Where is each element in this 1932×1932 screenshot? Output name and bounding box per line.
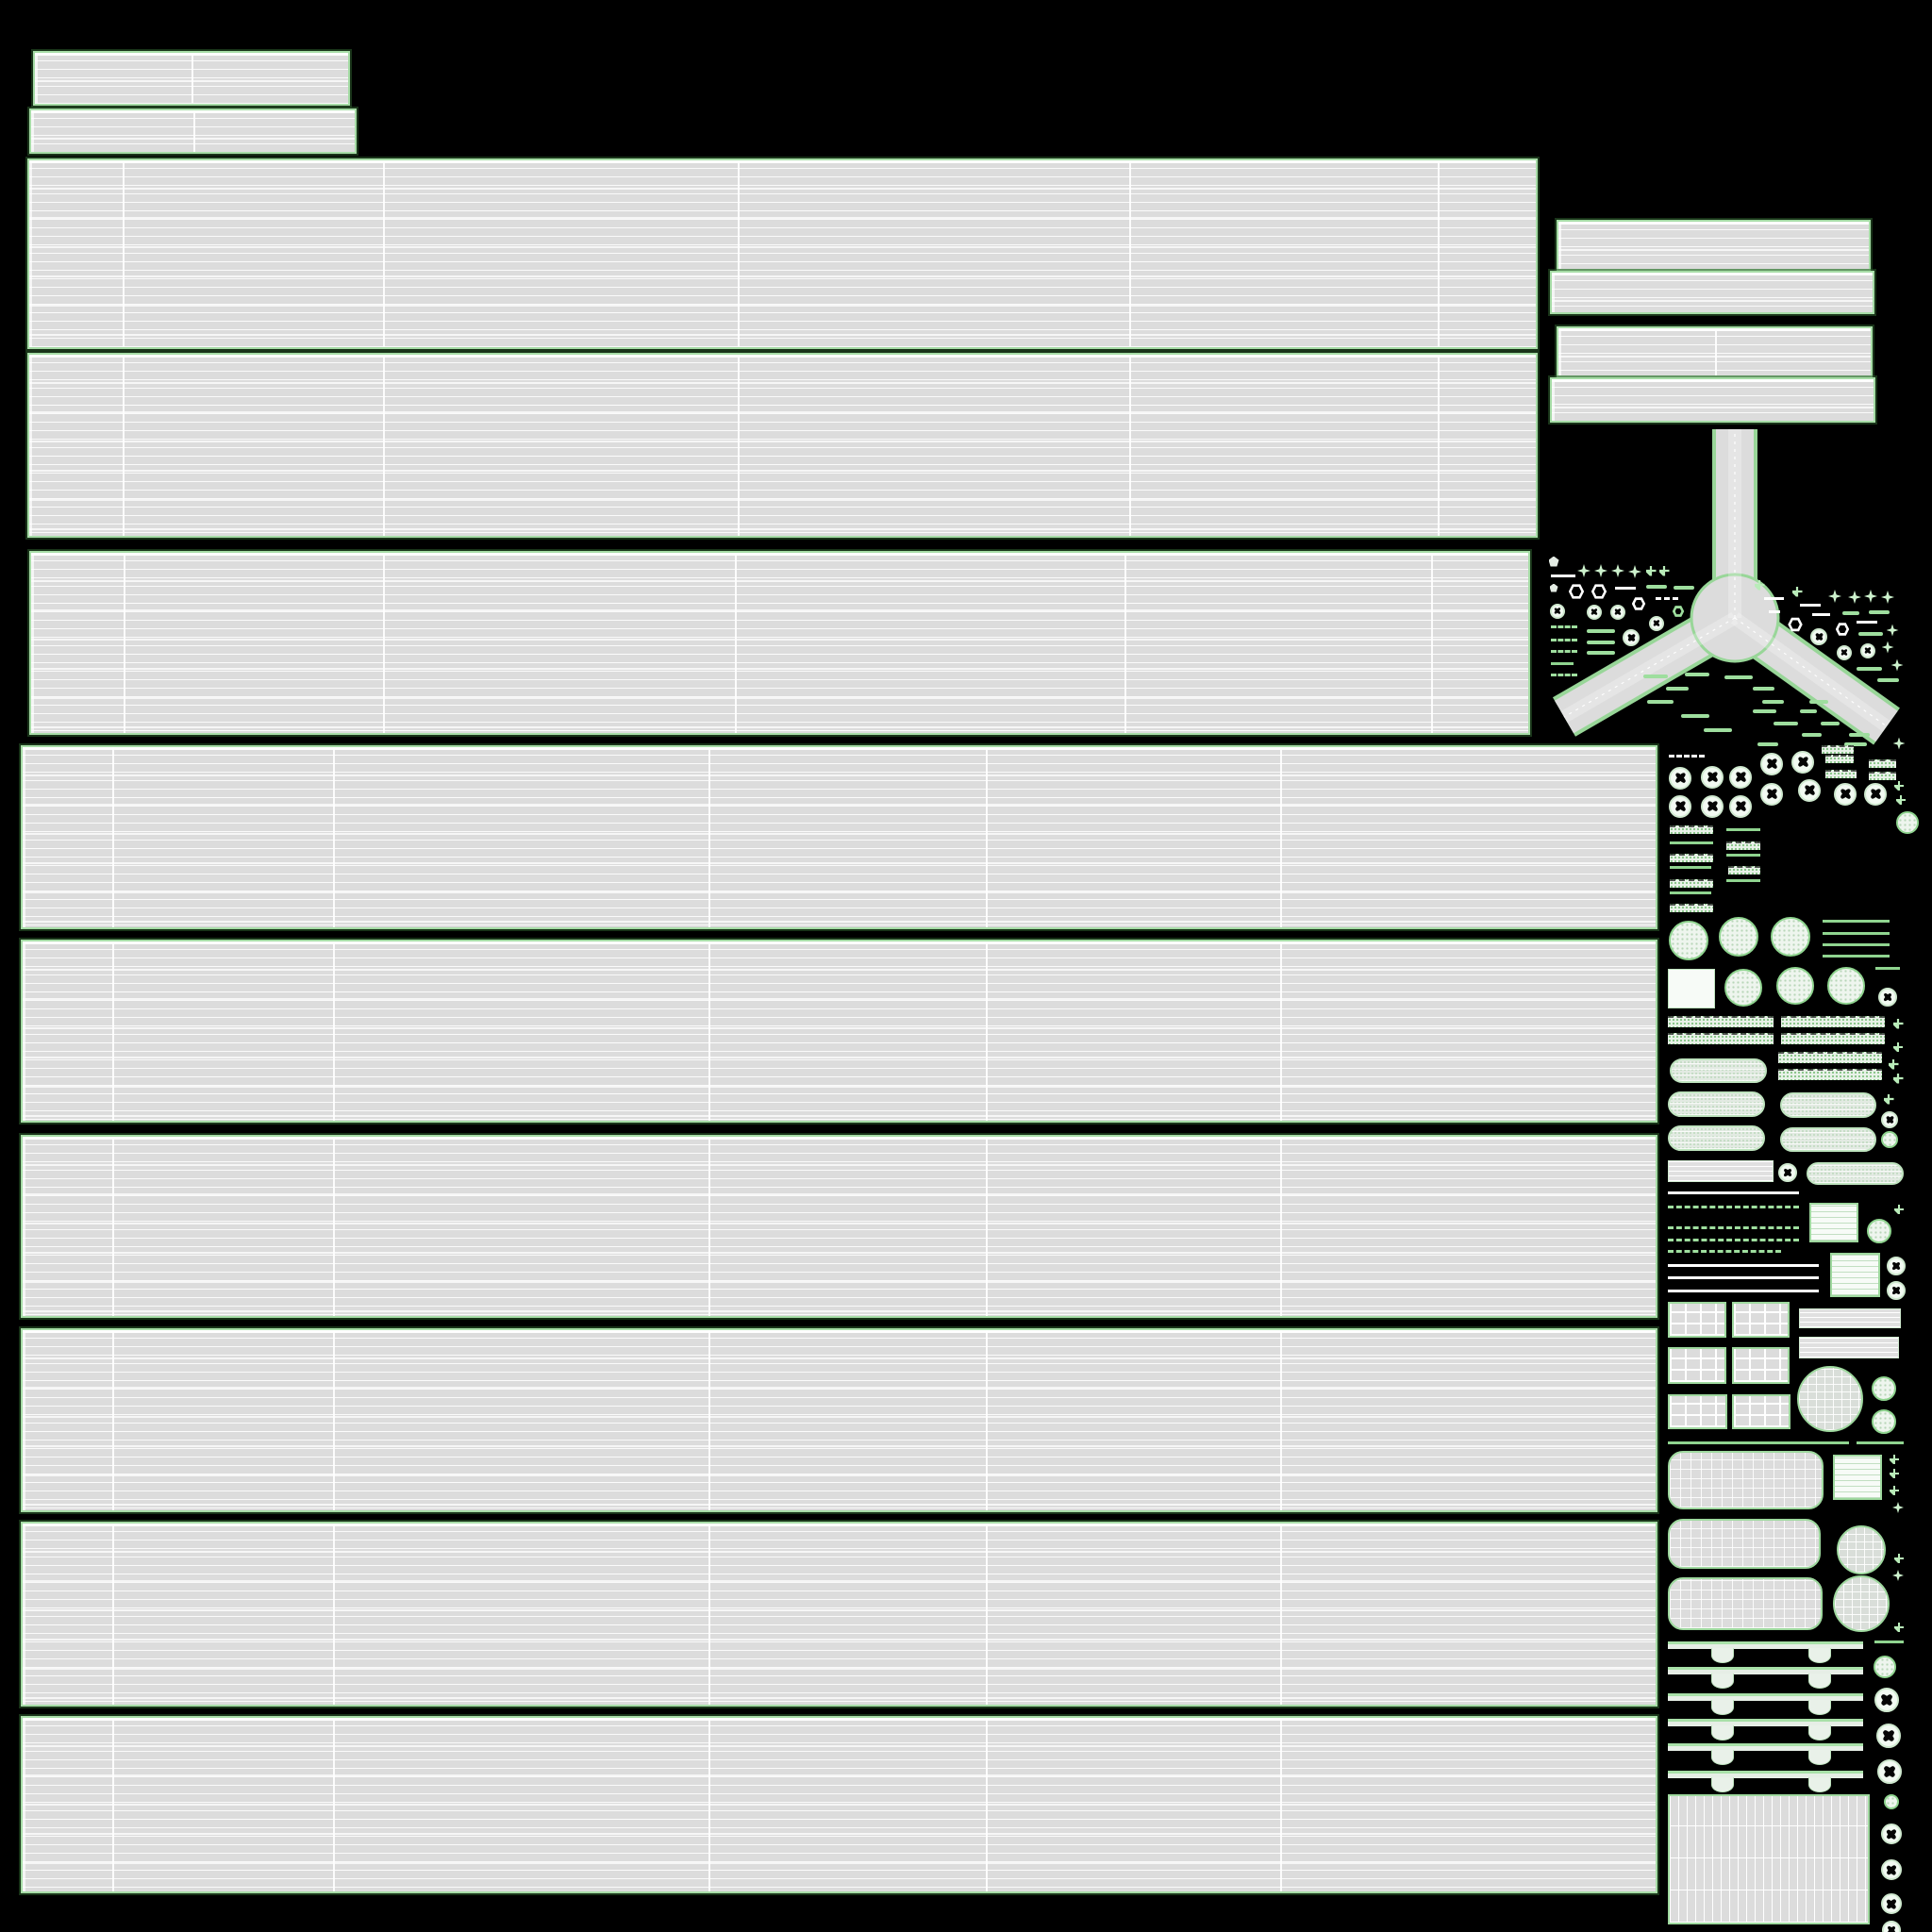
plank-seam (986, 1137, 988, 1316)
plank-seam (1280, 1137, 1282, 1316)
screw-head-island (1860, 643, 1875, 658)
disc-island (1872, 1409, 1896, 1434)
rail-island (1668, 1743, 1863, 1751)
white-seam-line (1668, 1191, 1799, 1194)
screw-head-island (1791, 751, 1814, 774)
screw-head-island (1610, 605, 1625, 620)
square-island (1668, 969, 1715, 1008)
rail-island (1668, 1641, 1863, 1649)
dotted-bar-island (1670, 854, 1713, 862)
panel-grid-island (1668, 1302, 1726, 1338)
plank-seam (708, 1137, 710, 1316)
green-edge-line (1726, 854, 1760, 857)
strip-6 (21, 1135, 1657, 1318)
green-edge-line (1823, 943, 1890, 946)
dotted-bar-island (1869, 759, 1896, 768)
white-seam-line (1857, 621, 1877, 624)
cross-icon (1890, 1469, 1899, 1478)
screw-head-island (1760, 783, 1783, 806)
hexagon-hole (1839, 625, 1847, 634)
green-edge-line (1874, 1641, 1904, 1643)
green-dash-line (1587, 651, 1615, 655)
dotted-bar-island (1781, 1016, 1885, 1027)
green-dash-line (1666, 687, 1689, 691)
green-edge-line (1823, 920, 1890, 923)
green-dash-line (1643, 675, 1668, 678)
rail-bump (1808, 1674, 1831, 1689)
dotted-bar-island (1781, 1033, 1885, 1044)
plank-seam (1280, 1330, 1282, 1510)
green-edge-line (1670, 841, 1713, 844)
white-seam-line (1551, 575, 1575, 577)
dotted-bar-island (1668, 1033, 1774, 1044)
plank-seam (192, 53, 193, 104)
panel-grid-island (1732, 1347, 1790, 1384)
panel-grid-island (1732, 1394, 1790, 1429)
plank-seam (383, 160, 385, 347)
green-dash-line (1587, 641, 1615, 644)
rail-bump (1808, 1700, 1831, 1715)
right-box-3 (1557, 326, 1873, 377)
screw-head-island (1729, 766, 1752, 789)
striped-square-island (1830, 1253, 1880, 1297)
disc-island (1884, 1794, 1899, 1809)
plank-seam (1280, 747, 1282, 927)
uv-texture-atlas (0, 0, 1932, 1932)
hexagon-hole (1594, 587, 1605, 597)
green-dash-line (1842, 611, 1859, 615)
green-dash-line (1858, 632, 1883, 636)
plank-seam (333, 1718, 335, 1891)
rail-bump (1711, 1725, 1734, 1740)
green-dash-line (1704, 728, 1732, 732)
rail-island (1668, 1693, 1863, 1701)
rail-bump (1808, 1750, 1831, 1765)
plank-seam (123, 355, 125, 536)
white-seam-line (1800, 604, 1821, 607)
sphere-island (1833, 1575, 1890, 1632)
plank-seam (986, 1524, 988, 1705)
screw-head-island (1550, 604, 1565, 619)
green-edge-line (1726, 828, 1760, 831)
white-dashed-line (1669, 755, 1705, 758)
plank-seam (1124, 553, 1126, 733)
top-box-2 (29, 108, 357, 154)
green-dash-line (1647, 700, 1674, 704)
cross-icon (1896, 795, 1906, 805)
green-dash-line (1849, 733, 1870, 737)
green-dashed-line (1551, 639, 1577, 641)
capsule-island (1670, 1058, 1767, 1083)
sphere-island (1797, 1366, 1863, 1432)
green-dash-line (1681, 714, 1709, 718)
disc-island (1896, 811, 1919, 834)
plank-seam (124, 553, 125, 733)
rail-island (1668, 1771, 1863, 1778)
strip-7 (21, 1328, 1657, 1512)
cross-icon (1893, 1074, 1904, 1084)
plank-seam (735, 553, 737, 733)
dotted-bar-island (1778, 1069, 1882, 1080)
dotted-bar-island (1670, 879, 1713, 888)
dotted-bar-island (1869, 772, 1896, 780)
plank-seam (112, 1524, 114, 1705)
dotted-bar-island (1726, 841, 1760, 850)
right-box-1 (1557, 220, 1871, 271)
plank-seam (1438, 160, 1440, 347)
dotted-bar-island (1822, 745, 1854, 754)
plank-seam (708, 1330, 710, 1510)
cushion-island (1668, 1519, 1821, 1569)
plank-seam (1431, 553, 1433, 733)
strip-5 (21, 940, 1657, 1123)
screw-head-island (1587, 605, 1602, 620)
disc-island (1874, 1656, 1896, 1678)
screw-head-island (1810, 628, 1827, 645)
capsule-island (1780, 1127, 1876, 1152)
panel-grid-island (1668, 1347, 1726, 1384)
cross-icon (1884, 1094, 1894, 1105)
cross-icon (1894, 1205, 1904, 1214)
screw-head-island (1882, 1921, 1901, 1932)
dotted-bar-island (1668, 1016, 1774, 1027)
screw-head-island (1778, 1163, 1797, 1182)
rail-bump (1711, 1700, 1734, 1715)
green-dash-line (1800, 709, 1817, 713)
plank-seam (1129, 355, 1131, 536)
screw-head-island (1669, 795, 1691, 818)
green-dash-line (1587, 629, 1615, 633)
screw-head-island (1881, 1824, 1902, 1844)
green-dashed-line (1668, 1250, 1781, 1253)
green-dash-line (1821, 722, 1840, 725)
plank-seam (986, 747, 988, 927)
white-seam-line (1668, 1276, 1819, 1279)
green-dash-line (1757, 742, 1778, 746)
plank-seam (193, 110, 195, 152)
plank-seam (112, 1330, 114, 1510)
disc-island (1724, 969, 1762, 1007)
screw-head-island (1874, 1688, 1899, 1712)
plank-seam (738, 355, 740, 536)
rail-bump (1711, 1674, 1734, 1689)
disc-island (1881, 1131, 1898, 1148)
panel-grid-island (1668, 1394, 1727, 1429)
dotted-bar-island (1728, 866, 1760, 874)
green-dash-line (1753, 709, 1776, 713)
dotted-bar-island (1670, 825, 1713, 834)
plank-seam (986, 1330, 988, 1510)
disc-island (1827, 967, 1865, 1005)
green-edge-line (1670, 866, 1711, 869)
dotted-bar-island (1670, 904, 1713, 912)
disc-island (1771, 917, 1810, 957)
strip-2 (27, 353, 1538, 538)
plank-seam (708, 1718, 710, 1891)
plank-seam (383, 553, 385, 733)
hexagon-hole (1790, 620, 1800, 629)
dotted-bar-island (1825, 770, 1857, 778)
plank-seam (1438, 355, 1440, 536)
hexagon-hole (1572, 587, 1582, 597)
plank-seam (333, 1137, 335, 1316)
cross-icon (1894, 1554, 1904, 1563)
disc-island (1669, 921, 1708, 960)
striped-square-island (1833, 1455, 1882, 1500)
green-edge-line (1823, 932, 1890, 935)
green-dashed-line (1668, 1206, 1799, 1208)
green-edge-line (1823, 955, 1890, 958)
plank-seam (1129, 160, 1131, 347)
striped-bar-island (1799, 1308, 1901, 1328)
screw-head-island (1760, 753, 1783, 775)
hexagon-hole (1635, 600, 1643, 608)
capsule-island (1780, 1092, 1876, 1118)
green-dash-line (1869, 610, 1890, 614)
plank-seam (986, 1718, 988, 1891)
rail-bump (1808, 1725, 1831, 1740)
white-seam-line (1668, 1264, 1819, 1267)
plank-seam (333, 1330, 335, 1510)
right-box-2 (1550, 271, 1874, 314)
green-dash-line (1646, 585, 1667, 589)
top-box-1 (33, 51, 350, 106)
hexagon-hole (1675, 608, 1682, 615)
disc-island (1719, 917, 1758, 957)
green-dash-line (1877, 678, 1899, 682)
screw-head-island (1881, 1893, 1902, 1914)
white-dashed-line (1656, 597, 1678, 600)
capsule-island (1668, 1091, 1765, 1117)
cross-icon (1893, 1019, 1904, 1029)
rail-bump (1711, 1777, 1734, 1792)
green-edge-line (1726, 879, 1760, 882)
strip-9 (21, 1716, 1657, 1893)
white-seam-line (1615, 587, 1636, 590)
screw-head-island (1701, 795, 1724, 818)
plank-seam (738, 160, 740, 347)
striped-bar-island (1668, 1160, 1774, 1182)
cushion-island (1668, 1451, 1824, 1509)
rail-bump (1808, 1648, 1831, 1663)
screw-head-island (1881, 1111, 1898, 1128)
cross-icon (1890, 1455, 1899, 1464)
white-seam-line (1764, 597, 1784, 600)
panel-grid-island (1732, 1302, 1790, 1338)
screw-head-island (1834, 783, 1857, 806)
screw-head-island (1669, 767, 1691, 790)
screw-head-island (1877, 1759, 1902, 1784)
screw-head-island (1881, 1859, 1902, 1880)
strip-4 (21, 745, 1657, 929)
screw-head-island (1623, 629, 1640, 646)
green-edge-line (1875, 967, 1900, 970)
strip-8 (21, 1522, 1657, 1707)
plank-seam (986, 941, 988, 1121)
cross-icon (1894, 1623, 1904, 1632)
disc-island (1872, 1376, 1896, 1401)
plank-seam (112, 941, 114, 1121)
screw-head-island (1837, 645, 1852, 660)
rail-island (1668, 1719, 1863, 1726)
striped-square-island (1809, 1203, 1858, 1242)
striped-bar-island (1799, 1337, 1899, 1358)
green-dash-line (1857, 667, 1882, 671)
green-edge-line (1551, 662, 1574, 665)
green-dashed-line (1668, 1226, 1799, 1229)
screw-head-island (1876, 1724, 1901, 1748)
rail-bump (1808, 1777, 1831, 1792)
disc-island (1776, 967, 1814, 1005)
cushion-island (1668, 1577, 1823, 1630)
green-dash-line (1674, 586, 1694, 590)
cross-icon (1890, 1486, 1899, 1495)
dotted-bar-island (1778, 1052, 1882, 1063)
green-dash-line (1724, 675, 1753, 679)
plank-seam (1715, 328, 1717, 375)
plank-seam (1280, 1524, 1282, 1705)
cross-icon (1889, 1059, 1899, 1070)
green-dashed-line (1551, 625, 1577, 628)
green-edge-line (1857, 1441, 1904, 1444)
green-dashed-line (1551, 674, 1577, 676)
white-seam-line (1812, 613, 1830, 616)
white-seam-line (1769, 610, 1780, 613)
plank-seam (333, 747, 335, 927)
plank-seam (112, 747, 114, 927)
sphere-island (1837, 1525, 1886, 1574)
white-seam-line (1668, 1290, 1819, 1292)
capsule-island (1807, 1162, 1904, 1185)
green-dash-line (1774, 722, 1798, 725)
plank-seam (333, 941, 335, 1121)
plank-seam (708, 941, 710, 1121)
screw-head-island (1798, 779, 1821, 802)
star-icon (1892, 1502, 1904, 1513)
screw-head-island (1649, 616, 1664, 631)
green-dash-line (1762, 700, 1784, 704)
star-icon (1892, 1570, 1904, 1581)
capsule-island (1668, 1125, 1765, 1151)
rail-island (1668, 1667, 1863, 1674)
screw-head-island (1701, 766, 1724, 789)
green-dash-line (1685, 673, 1709, 676)
disc-island (1867, 1219, 1891, 1243)
green-dashed-line (1668, 1239, 1799, 1241)
plank-seam (112, 1137, 114, 1316)
plank-seam (708, 1524, 710, 1705)
screw-head-island (1864, 783, 1887, 806)
green-dash-line (1802, 733, 1822, 737)
slatted-panel-island (1668, 1794, 1870, 1924)
strip-1 (27, 158, 1538, 349)
green-edge-line (1670, 891, 1711, 894)
screw-head-island (1878, 988, 1897, 1007)
strip-3 (29, 551, 1530, 735)
rail-bump (1711, 1750, 1734, 1765)
plank-seam (123, 160, 125, 347)
green-dash-line (1753, 687, 1774, 691)
dotted-bar-island (1825, 755, 1854, 763)
plank-seam (708, 747, 710, 927)
plank-seam (383, 355, 385, 536)
green-edge-line (1668, 1441, 1849, 1444)
screw-head-island (1729, 795, 1752, 818)
plank-seam (1280, 941, 1282, 1121)
green-dashed-line (1551, 650, 1577, 653)
cross-icon (1893, 1042, 1903, 1052)
plank-seam (112, 1718, 114, 1891)
plank-seam (333, 1524, 335, 1705)
green-dash-line (1809, 700, 1828, 704)
screw-head-island (1887, 1281, 1906, 1300)
rail-bump (1711, 1648, 1734, 1663)
screw-head-island (1887, 1257, 1906, 1275)
plank-seam (1280, 1718, 1282, 1891)
